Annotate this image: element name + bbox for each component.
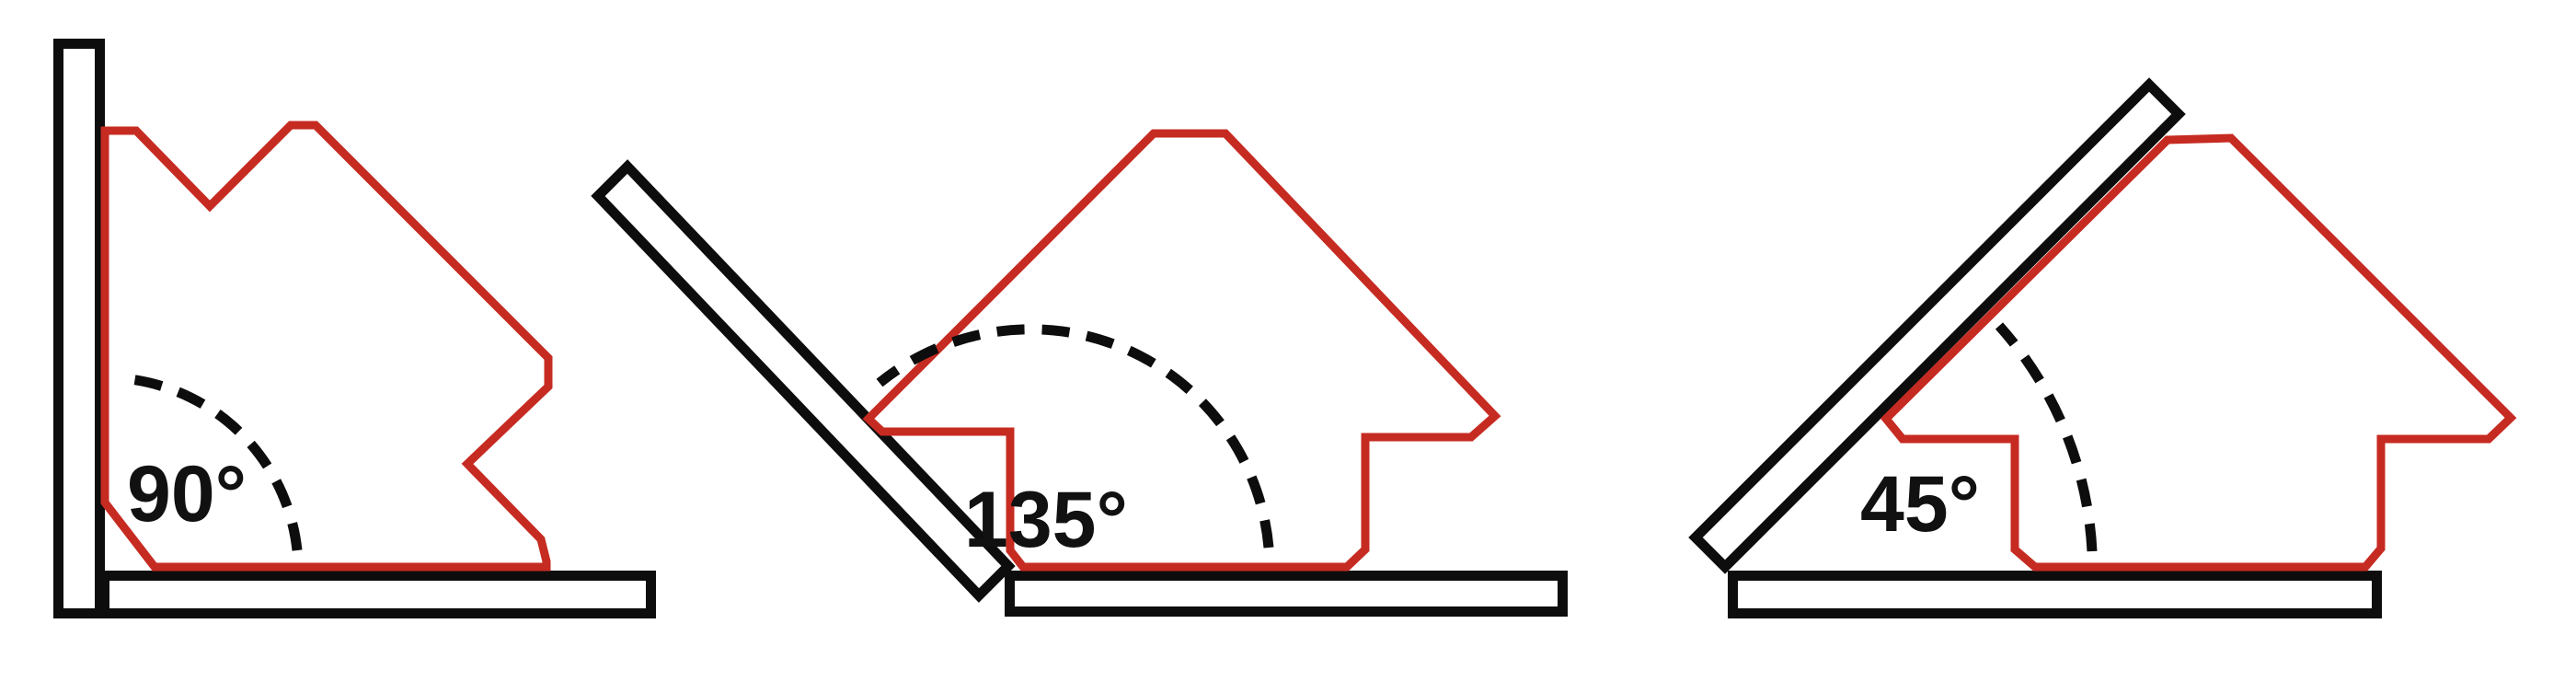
- angle-label: 45°: [1860, 460, 1980, 549]
- base-workpiece-plate: [1010, 576, 1563, 612]
- magnet-outline: [868, 133, 1495, 567]
- base-workpiece-plate: [105, 576, 651, 614]
- angle-label: 90°: [127, 450, 247, 538]
- base-workpiece-plate: [1733, 576, 2377, 614]
- panel-45: 45°: [1696, 85, 2511, 614]
- panel-90: 90°: [59, 44, 651, 614]
- vertical-workpiece-plate: [59, 44, 100, 614]
- diagram-canvas: 90° 135° 45°: [0, 0, 2576, 693]
- angle-label: 135°: [964, 476, 1128, 564]
- welding-magnet-angle-diagram: 90° 135° 45°: [0, 0, 2576, 693]
- panel-135: 135°: [598, 133, 1563, 612]
